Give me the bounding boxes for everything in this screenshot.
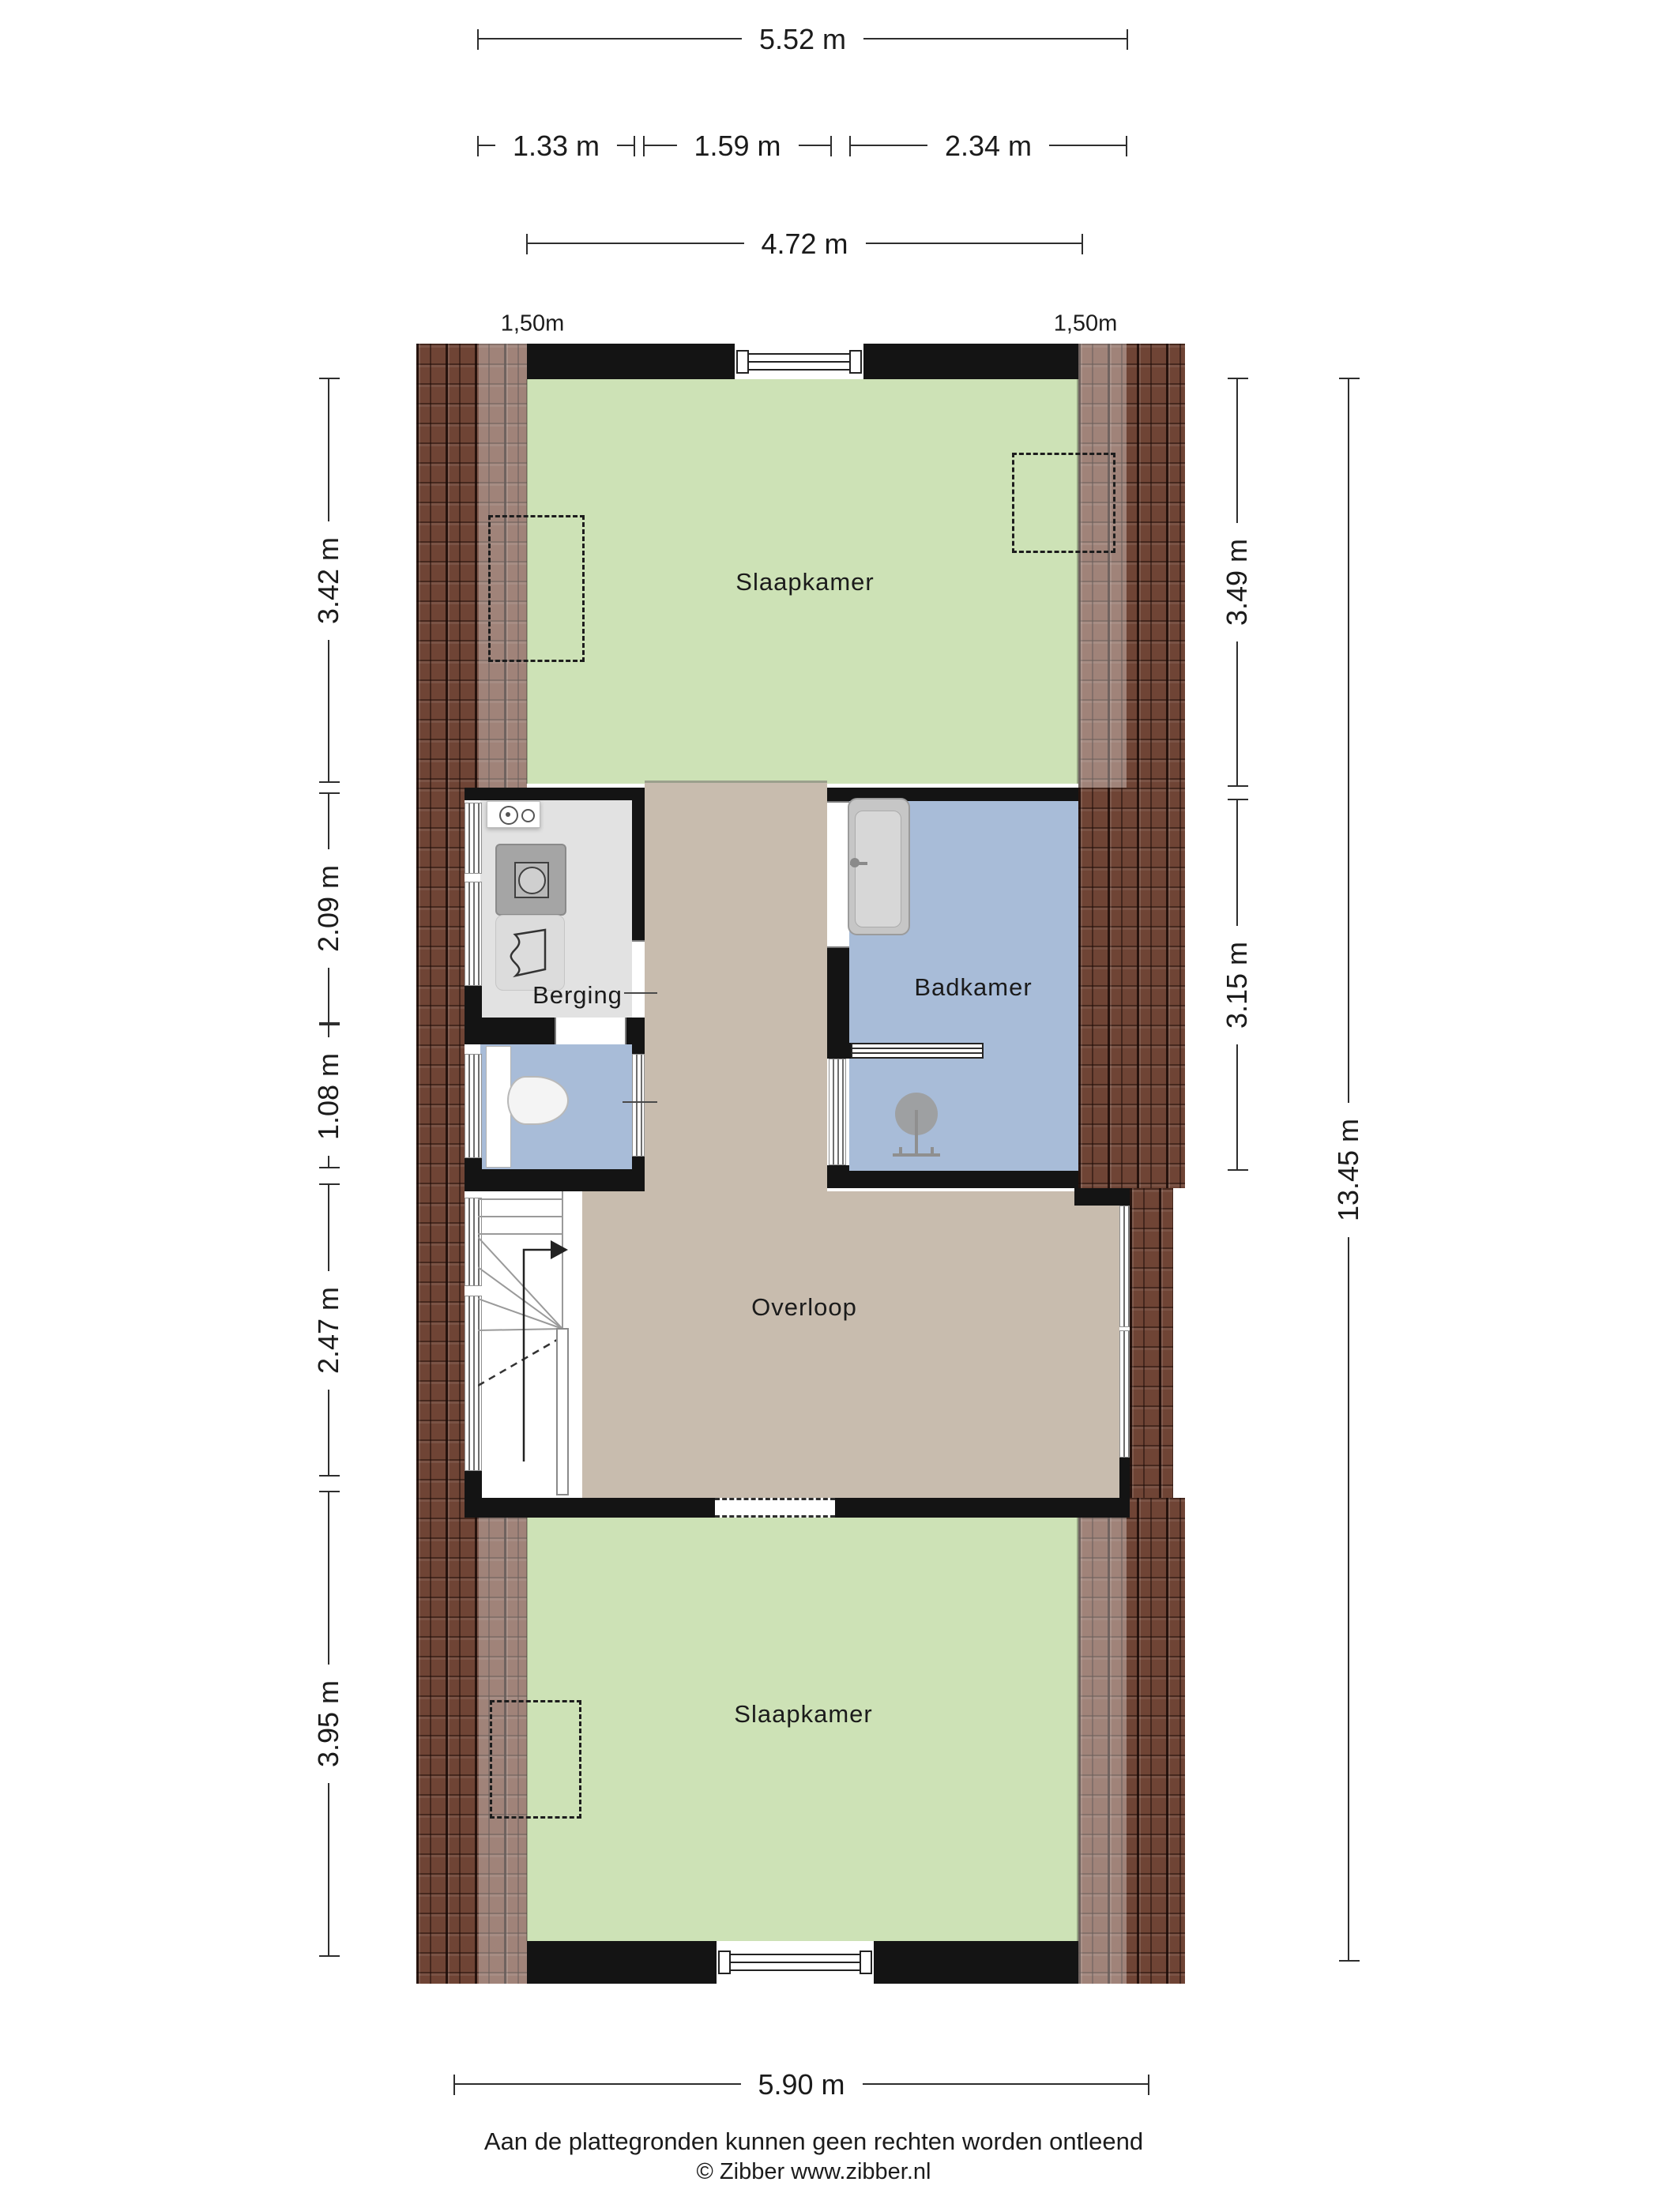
window-glazing [729, 1954, 861, 1971]
landing-corridor [645, 782, 827, 1191]
vent-dial-dot [506, 812, 510, 817]
stairs-direction-arrow [551, 1240, 568, 1259]
footer-copyright: © Zibber www.zibber.nl [182, 2159, 1446, 2185]
dim-left-4: 2.47 m [328, 1184, 329, 1476]
stairs [478, 1191, 582, 1498]
radiator [851, 1043, 984, 1059]
room-label-bedroom-bottom: Slaapkamer [734, 1700, 872, 1729]
dim-label: 13.45 m [1329, 1102, 1368, 1236]
wall-node [626, 1018, 645, 1044]
door-opening-bathroom [827, 801, 849, 948]
room-label-bathroom: Badkamer [914, 973, 1032, 1002]
dim-label: 3.49 m [1217, 523, 1257, 641]
window-glazing [747, 353, 851, 371]
roof-strip-right-bump [1130, 1188, 1173, 1498]
roof-window-outline-top-left [488, 515, 585, 662]
dim-label: 3.95 m [309, 1665, 348, 1783]
dim-label: 4.72 m [743, 226, 865, 262]
dim-label: 2.09 m [309, 848, 348, 967]
window-left-toilet [465, 1054, 482, 1158]
roof-headroom-band [1078, 1498, 1127, 1984]
dim-right-2: 3.15 m [1236, 799, 1238, 1170]
headroom-label-left: 1,50m [501, 311, 565, 337]
dim-top-segment-3: 2.34 m [850, 145, 1127, 146]
dim-label: 1.33 m [495, 128, 617, 164]
door-opening-toilet [555, 1018, 626, 1044]
window-frame-cap [736, 350, 749, 374]
dim-label: 2.47 m [309, 1270, 348, 1389]
dim-bottom-total: 5.90 m [454, 2083, 1149, 2085]
bathtub-faucet-bar [850, 862, 867, 865]
dim-label: 2.34 m [927, 128, 1049, 164]
bathtub-inner [855, 811, 901, 927]
dim-label: 5.90 m [740, 2067, 862, 2103]
laundry-basket [495, 915, 565, 991]
room-label-bedroom-top: Slaapkamer [735, 568, 874, 596]
wall-toilet-bottom [465, 1169, 645, 1191]
headroom-line [1077, 1518, 1078, 1941]
roof-window-outline-bottom [490, 1700, 581, 1819]
wall-bathroom-bottom [827, 1171, 1078, 1188]
wall-left-node [465, 1158, 482, 1191]
dim-top-total: 5.52 m [478, 38, 1127, 39]
window-top [735, 344, 863, 379]
dim-left-5: 3.95 m [328, 1492, 329, 1956]
dim-left-1: 3.42 m [328, 378, 329, 782]
roof-headroom-band [1078, 344, 1127, 788]
dim-label: 1.59 m [676, 128, 798, 164]
label-leader-toilet [623, 1101, 657, 1103]
roof-strip-left-mid [416, 788, 465, 1498]
vent-dial-icon-small [521, 809, 535, 822]
dim-top-segment-1: 1.33 m [478, 145, 634, 146]
headroom-label-right: 1,50m [1054, 311, 1118, 337]
wall-storage-right [632, 788, 645, 940]
room-bedroom-bottom [527, 1518, 1078, 1941]
roof-window-outline-top-right [1012, 453, 1115, 553]
window-bathroom-left [829, 1059, 846, 1165]
window-frame-cap [849, 350, 862, 374]
window-frame-cap [860, 1951, 872, 1974]
window-bottom [717, 1941, 874, 1984]
window-landing-right-2 [1119, 1330, 1130, 1458]
dim-left-3: 1.08 m [328, 1025, 329, 1168]
dim-right-total: 13.45 m [1348, 378, 1349, 1961]
room-label-landing: Overloop [751, 1293, 857, 1322]
dim-top-segment-2: 1.59 m [644, 145, 831, 146]
landing-corridor-top-line [645, 781, 827, 783]
floorplan-page: Berging Badkamer Slaapkamer Overloop Sla… [0, 0, 1659, 2212]
wall-landing-step [1074, 1188, 1130, 1206]
shower-faucet-knob [915, 1144, 918, 1157]
roof-strip-right-top [1078, 344, 1185, 788]
room-label-storage: Berging [532, 981, 623, 1010]
roof-strip-right-bath [1078, 788, 1185, 1188]
dim-label: 5.52 m [742, 21, 863, 58]
dim-label: 3.42 m [309, 521, 348, 639]
roof-strip-right-bottom [1078, 1498, 1185, 1984]
shower-faucet-knob [899, 1147, 902, 1157]
headroom-line [1077, 379, 1078, 784]
wall-bathroom-left [827, 948, 849, 1043]
window-left-storage-1 [465, 803, 482, 874]
label-leader-storage [624, 992, 657, 994]
shower-faucet-knob [931, 1147, 934, 1157]
washing-machine-drum-icon [518, 867, 546, 894]
laundry-basket-icon [496, 916, 564, 990]
dim-right-1: 3.49 m [1236, 378, 1238, 786]
footer-disclaimer: Aan de plattegronden kunnen geen rechten… [182, 2127, 1446, 2156]
room-landing-main [582, 1191, 1119, 1498]
dim-label: 1.08 m [309, 1036, 348, 1155]
window-left-storage-2 [465, 882, 482, 986]
wall-left-node [465, 986, 482, 1044]
window-landing-right-1 [1119, 1206, 1130, 1327]
window-toilet-right [632, 1054, 645, 1157]
wall-storage-top [465, 788, 645, 800]
wall-node [827, 1043, 852, 1059]
window-frame-cap [718, 1951, 731, 1974]
dim-label: 3.15 m [1217, 925, 1257, 1044]
dim-top-inner: 4.72 m [527, 243, 1082, 244]
door-opening-bedroom-bottom [715, 1498, 835, 1518]
dim-left-2: 2.09 m [328, 793, 329, 1023]
